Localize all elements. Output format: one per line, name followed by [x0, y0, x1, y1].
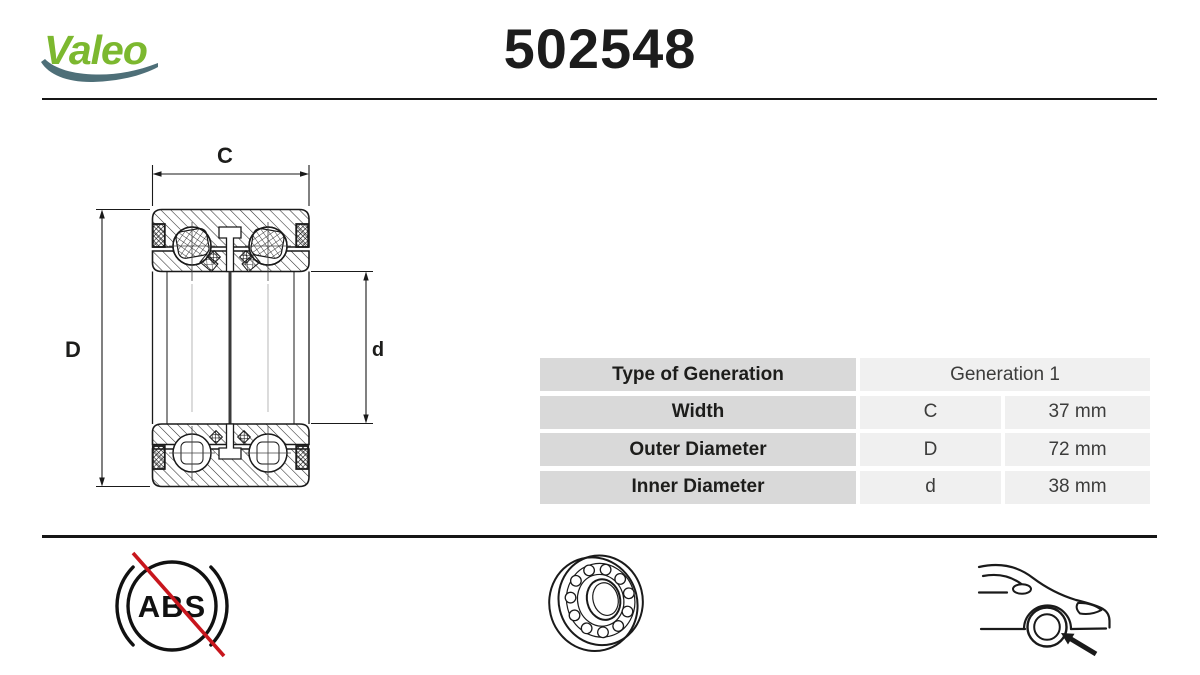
dim-label-d-outer: D [65, 337, 81, 362]
table-row: Type of Generation Generation 1 [540, 358, 1150, 391]
spec-label: Inner Diameter [540, 471, 856, 504]
spec-label: Outer Diameter [540, 433, 856, 466]
dim-label-c: C [217, 143, 233, 168]
seal-top-right [296, 224, 308, 247]
bearing-cross-section-diagram: C D d [40, 130, 400, 510]
bearing-body [153, 210, 310, 487]
table-row: Inner Diameter d 38 mm [540, 471, 1150, 504]
seal-bottom-right [296, 446, 308, 469]
abs-label: ABS [138, 589, 206, 624]
spec-value: 37 mm [1005, 396, 1150, 429]
spec-value: 72 mm [1005, 433, 1150, 466]
seal-bottom-left [153, 446, 165, 469]
dim-label-d-inner: d [372, 339, 384, 361]
spec-sheet-page: Valeo 502548 C [0, 0, 1200, 675]
dimension-d-outer [96, 210, 150, 487]
spec-table: Type of Generation Generation 1 Width C … [540, 358, 1150, 508]
spec-symbol: D [860, 433, 1001, 466]
page-title-part-number: 502548 [0, 16, 1200, 81]
table-row: Outer Diameter D 72 mm [540, 433, 1150, 466]
spec-symbol: C [860, 396, 1001, 429]
table-row: Width C 37 mm [540, 396, 1150, 429]
spec-value: 38 mm [1005, 471, 1150, 504]
dimension-c [153, 165, 310, 206]
spec-label: Type of Generation [540, 358, 856, 391]
spec-symbol: d [860, 471, 1001, 504]
spec-label: Width [540, 396, 856, 429]
spec-value: Generation 1 [860, 358, 1150, 391]
no-abs-icon: ABS [100, 546, 245, 664]
car-front-wheel-icon [950, 550, 1120, 662]
wheel-pointer-arrow [1061, 633, 1096, 654]
header-divider [42, 98, 1157, 101]
seal-top-left [153, 224, 165, 247]
footer-divider [42, 535, 1157, 538]
wheel-bearing-icon [540, 548, 660, 660]
dimension-d-inner [311, 272, 373, 424]
